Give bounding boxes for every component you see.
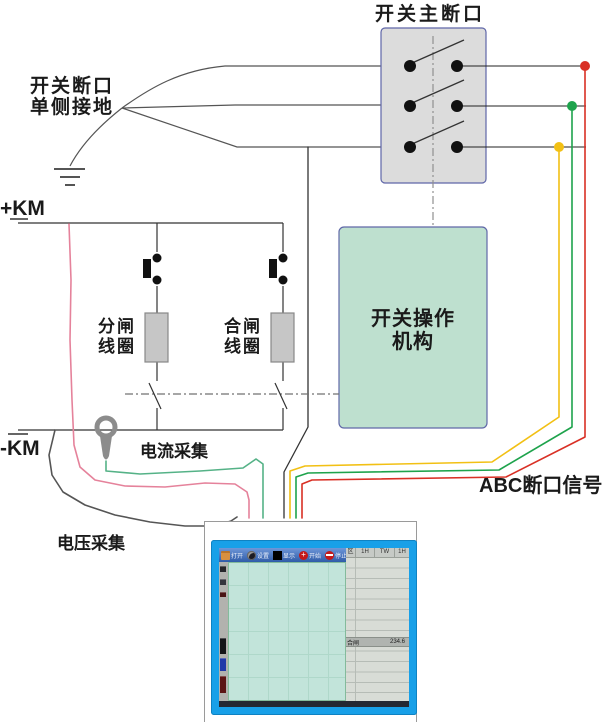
toolbar-display-label: 显示 [283, 551, 295, 560]
start-icon [299, 551, 308, 560]
voltage-sampling-label: 电压采集 [57, 533, 126, 553]
phase-a-terminal-dot [580, 61, 590, 71]
result-col-1: 区 [346, 548, 356, 557]
result-col-4: 1H [395, 548, 409, 557]
toolbar-open-button[interactable]: 打开 [221, 551, 245, 560]
phase-b-terminal-dot [567, 101, 577, 111]
open-coil-label-line1: 分闸 [98, 316, 136, 336]
close-coil-label-line2: 线圈 [224, 336, 262, 356]
side-tool-icon-3[interactable] [220, 592, 226, 597]
result-col-3: TW [375, 548, 395, 557]
plus-km-label: +KM [0, 197, 45, 220]
toolbar-open-label: 打开 [231, 551, 243, 560]
instrument-side-toolbar [219, 562, 228, 701]
result-col-2: 1H [356, 548, 375, 557]
phase-c-terminal-dot [554, 142, 564, 152]
open-pushbutton [143, 259, 151, 278]
open-coil-label-line2: 线圈 [98, 336, 136, 356]
abc-signal-label: ABC断口信号 [479, 473, 602, 497]
result-table-header: 区 1H TW 1H [346, 548, 409, 558]
side-tool-icon-2[interactable] [220, 579, 226, 585]
break-ground-label-line2: 单侧接地 [30, 95, 114, 118]
circuit-diagram: 开关主断口 开关断口 单侧接地 +KM -KM 分闸 线圈 合闸 线圈 开关操作… [0, 0, 605, 722]
waveform-plot-area [228, 562, 346, 701]
close-pushbutton [269, 259, 277, 278]
toolbar-start-label: 开始 [309, 551, 321, 560]
open-coil-body [145, 313, 168, 362]
toolbar-settings-button[interactable]: 设置 [247, 551, 271, 560]
open-coil-branch [143, 223, 168, 430]
close-coil-branch [269, 223, 294, 430]
selected-row-label: 合闸 [347, 638, 359, 647]
main-break-title: 开关主断口 [375, 2, 485, 25]
minus-km-label: -KM [0, 437, 40, 460]
wire-current-sampling-green [106, 459, 263, 518]
mechanism-label-line2: 机构 [392, 329, 434, 353]
current-clamp [97, 418, 115, 460]
open-aux-contact-blade [149, 383, 161, 409]
stop-icon [325, 551, 334, 560]
break-ground-label-line1: 开关断口 [30, 74, 114, 97]
side-blue-button[interactable] [220, 658, 226, 671]
break-side-phase-lines [70, 66, 403, 166]
side-red-button[interactable] [220, 676, 226, 693]
close-coil-body [271, 313, 294, 362]
display-icon [273, 551, 282, 560]
close-aux-contact-blade [275, 383, 287, 409]
result-selected-row[interactable]: 合闸 234.6 [346, 637, 409, 647]
close-coil-label-line1: 合闸 [224, 316, 262, 336]
instrument-photo: 打开 设置 显示 开始 停止 [211, 540, 417, 715]
mechanism-label-line1: 开关操作 [371, 306, 455, 330]
toolbar-start-button[interactable]: 开始 [299, 551, 323, 560]
instrument-screen: 打开 设置 显示 开始 停止 [219, 548, 409, 707]
folder-icon [221, 551, 230, 560]
result-table-body [346, 558, 409, 701]
selected-row-value: 234.6 [390, 639, 405, 645]
phase-c-left-lead [122, 108, 403, 147]
camera-icon [247, 551, 256, 560]
instrument-toolbar: 打开 设置 显示 开始 停止 [219, 548, 346, 562]
side-tool-icon-1[interactable] [220, 566, 226, 572]
toolbar-settings-label: 设置 [257, 551, 269, 560]
result-table: 区 1H TW 1H 合闸 234.6 [346, 548, 409, 701]
phase-b-left-lead [122, 105, 403, 108]
wire-trip-sampling-pink [69, 224, 249, 518]
ground-symbol [54, 169, 85, 185]
current-sampling-label: 电流采集 [140, 441, 209, 461]
phase-a-left-lead [122, 66, 403, 108]
toolbar-display-button[interactable]: 显示 [273, 551, 297, 560]
side-black-button[interactable] [220, 638, 226, 654]
